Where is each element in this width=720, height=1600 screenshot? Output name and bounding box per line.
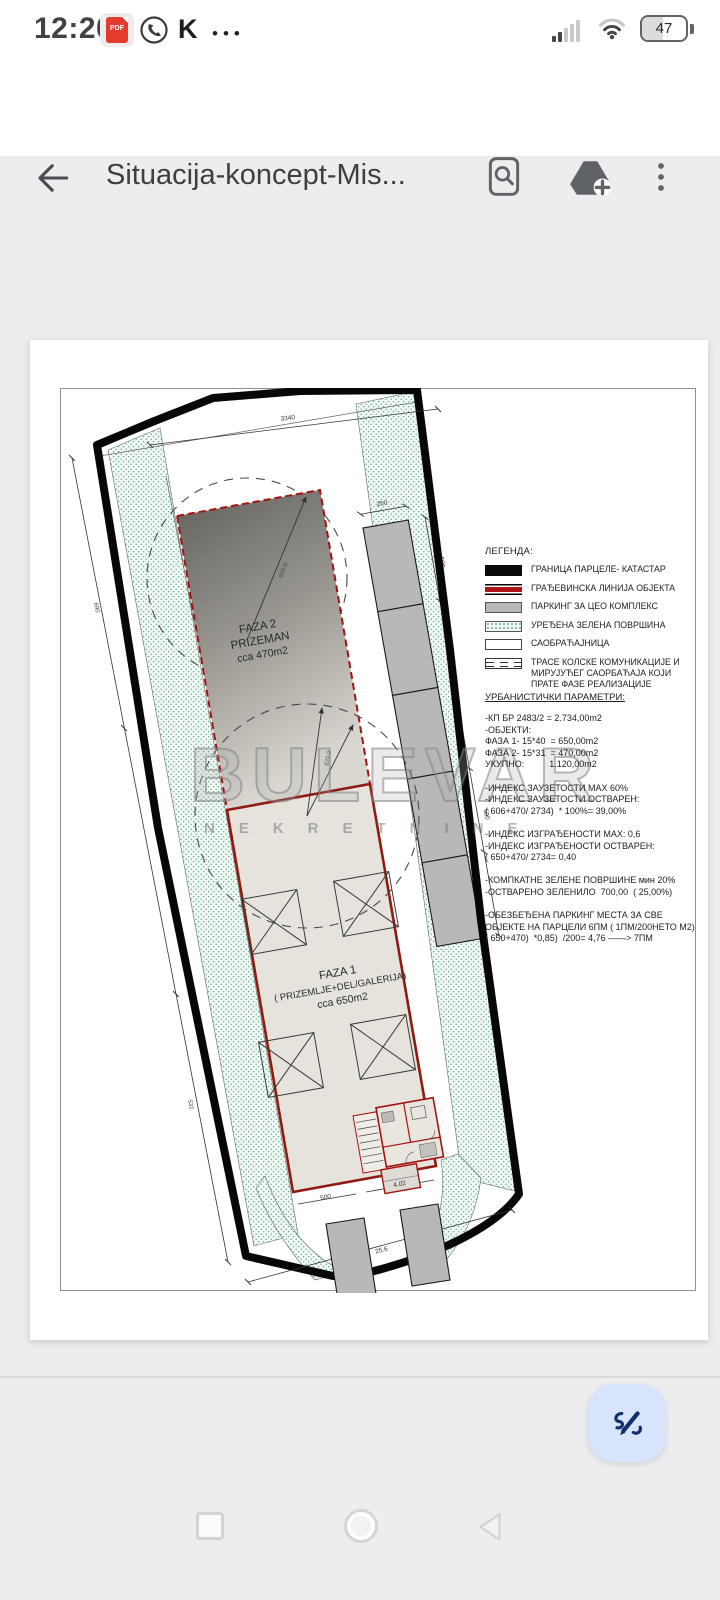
- legend-item: ТРАСЕ КОЛСКЕ КОМУНИКАЦИЈЕ И МИРУЈУЋЕГ СА…: [485, 657, 700, 690]
- battery-tip: [690, 24, 694, 34]
- overflow-menu-button[interactable]: [653, 159, 669, 202]
- param-line: -КП БР 2483/2 = 2.734,00m2: [485, 713, 703, 725]
- param-line: -ИНДЕКС ЗАУЗЕТОСТИ МАХ 60%: [485, 783, 703, 795]
- param-line: -ОБЈЕКТИ:: [485, 725, 703, 737]
- legend-item: ГРАЂЕВИНСКА ЛИНИЈА ОБЈЕКТА: [485, 583, 700, 595]
- param-line: ( 606+470/ 2734) * 100%= 39,00%: [485, 806, 703, 818]
- param-line: [485, 864, 703, 876]
- find-in-document-button[interactable]: [486, 156, 522, 203]
- param-line: [485, 771, 703, 783]
- wifi-icon: [598, 16, 626, 45]
- pdf-notification-icon: PDF: [100, 13, 134, 47]
- swatch-green-area: [485, 621, 522, 632]
- annotate-fab[interactable]: [588, 1384, 666, 1462]
- add-to-drive-button[interactable]: [568, 158, 614, 203]
- home-button[interactable]: [344, 1509, 378, 1543]
- battery-icon: 47: [640, 15, 688, 42]
- param-line: УКУПНО: 1.120,00m2: [485, 759, 703, 771]
- swatch-phase-routes: [485, 658, 522, 669]
- param-line: ФАЗА 2- 15*31 = 470,00m2: [485, 748, 703, 760]
- recents-button[interactable]: [196, 1512, 224, 1540]
- legend-item: УРЕЂЕНА ЗЕЛЕНА ПОВРШИНА: [485, 620, 700, 632]
- status-bar: 12:20 PDF K ••• 47: [0, 0, 720, 60]
- urban-parameters: УРБАНИСТИЧКИ ПАРАМЕТРИ: -КП БР 2483/2 = …: [485, 692, 703, 945]
- pdf-page: 250 500 500 3340 690 532: [30, 340, 708, 1340]
- app-bar: Situacija-koncept-Mis...: [0, 60, 720, 157]
- param-line: ОБЈЕКТЕ НА ПАРЦЕЛИ 6ПМ ( 1ПМ/200НЕТО М2): [485, 922, 703, 934]
- back-button[interactable]: [30, 158, 70, 198]
- param-line: ( 650+470) *0,85) /200= 4,76 ——> 7ПМ: [485, 933, 703, 945]
- swatch-building-line: [485, 584, 522, 595]
- urban-parameters-heading: УРБАНИСТИЧКИ ПАРАМЕТРИ:: [485, 692, 703, 703]
- legend-item: ПАРКИНГ ЗА ЦЕО КОМПЛЕКС: [485, 601, 700, 613]
- param-line: -ОБЕЗБЕЂЕНА ПАРКИНГ МЕСТА ЗА СВЕ: [485, 910, 703, 922]
- signature-pen-icon: [608, 1404, 646, 1442]
- more-notifications-icon: •••: [212, 24, 245, 44]
- swatch-road: [485, 639, 522, 650]
- signal-strength-icon: [552, 18, 588, 44]
- param-line: -ОСТВАРЕНО ЗЕЛЕНИЛО 700,00 ( 25,00%): [485, 887, 703, 899]
- param-line: [485, 817, 703, 829]
- swatch-parking: [485, 602, 522, 613]
- viewport-divider: [0, 1376, 720, 1378]
- param-line: ( 650+470/ 2734= 0,40: [485, 852, 703, 864]
- param-line: [485, 899, 703, 911]
- legend-title: ЛЕГЕНДА:: [485, 546, 700, 557]
- document-title: Situacija-koncept-Mis...: [106, 159, 406, 192]
- legend-item: САОБРАЋАЈНИЦА: [485, 638, 700, 650]
- param-line: -ИНДЕКС ЗАУЗЕТОСТИ ОСТВАРЕН:: [485, 794, 703, 806]
- android-nav-bar: [0, 1500, 720, 1556]
- legend-item: ГРАНИЦА ПАРЦЕЛЕ- КАТАСТАР: [485, 564, 700, 576]
- k-app-notification-icon: K: [178, 14, 198, 45]
- param-line: -КОМПКАТНЕ ЗЕЛЕНЕ ПОВРШИНЕ мин 20%: [485, 875, 703, 887]
- android-screen: { "status_bar": { "time": "12:20", "pdf_…: [0, 0, 720, 1600]
- back-nav-button[interactable]: [474, 1510, 508, 1549]
- swatch-parcel-boundary: [485, 565, 522, 576]
- param-line: -ИНДЕКС ИЗГРАЂЕНОСТИ ОСТВАРЕН:: [485, 841, 703, 853]
- param-line: -ИНДЕКС ИЗГРАЂЕНОСТИ МАХ: 0,6: [485, 829, 703, 841]
- viber-notification-icon: [138, 13, 170, 47]
- legend: ЛЕГЕНДА: ГРАНИЦА ПАРЦЕЛЕ- КАТАСТАР ГРАЂЕ…: [485, 546, 700, 696]
- param-line: ФАЗА 1- 15*40 = 650,00m2: [485, 736, 703, 748]
- back-triangle-icon: [474, 1510, 508, 1544]
